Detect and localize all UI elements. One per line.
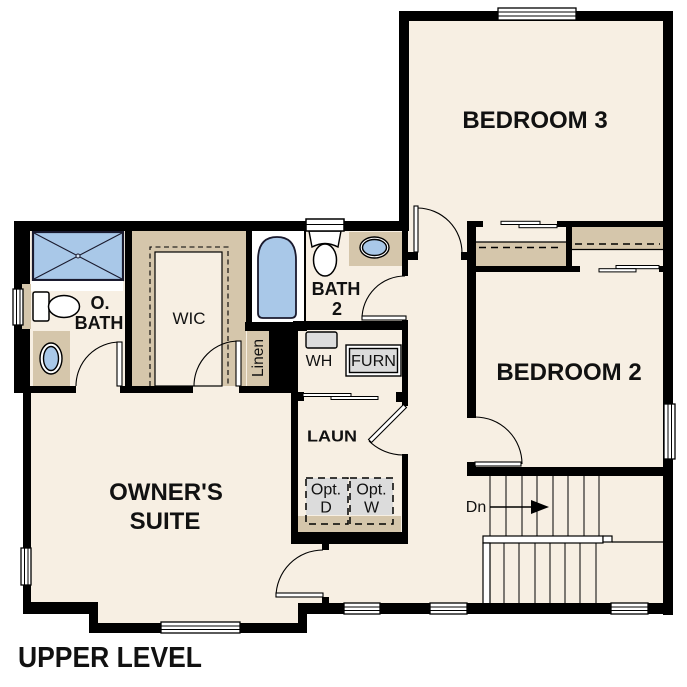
svg-text:WIC: WIC bbox=[172, 309, 205, 328]
svg-text:2: 2 bbox=[332, 299, 342, 319]
svg-text:Linen: Linen bbox=[250, 339, 267, 377]
svg-text:BEDROOM 2: BEDROOM 2 bbox=[496, 359, 641, 386]
svg-text:W: W bbox=[364, 500, 380, 517]
svg-text:LAUN: LAUN bbox=[307, 429, 357, 446]
svg-text:WH: WH bbox=[306, 353, 333, 370]
svg-text:SUITE: SUITE bbox=[130, 508, 201, 535]
svg-text:BEDROOM 3: BEDROOM 3 bbox=[462, 107, 607, 134]
svg-text:O.: O. bbox=[90, 293, 109, 313]
svg-text:Dn: Dn bbox=[466, 499, 486, 516]
svg-text:BATH: BATH bbox=[312, 279, 361, 299]
svg-text:D: D bbox=[320, 500, 332, 517]
svg-text:Opt.: Opt. bbox=[311, 482, 341, 499]
svg-text:BATH: BATH bbox=[75, 313, 124, 333]
svg-text:Opt.: Opt. bbox=[356, 482, 386, 499]
svg-text:UPPER LEVEL: UPPER LEVEL bbox=[18, 642, 202, 674]
svg-text:OWNER'S: OWNER'S bbox=[109, 479, 223, 506]
svg-text:FURN: FURN bbox=[351, 353, 396, 370]
